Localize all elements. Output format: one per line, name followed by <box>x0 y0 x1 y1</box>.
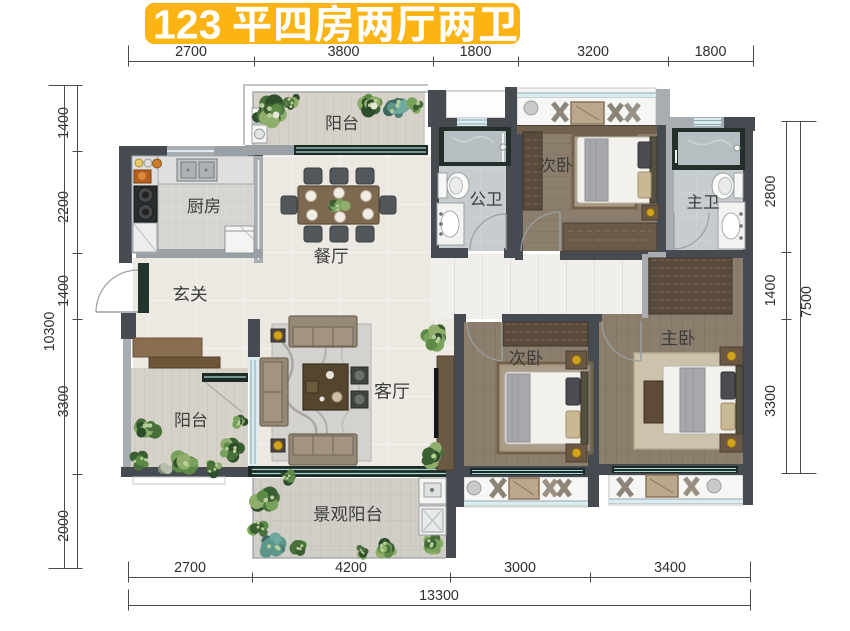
svg-text:1400: 1400 <box>763 275 779 307</box>
svg-text:3800: 3800 <box>328 44 360 60</box>
svg-text:13300: 13300 <box>419 588 459 604</box>
svg-text:2800: 2800 <box>763 176 779 208</box>
svg-text:123: 123 <box>153 2 221 48</box>
svg-text:4200: 4200 <box>335 560 367 576</box>
svg-text:3000: 3000 <box>504 560 536 576</box>
svg-text:10300: 10300 <box>42 312 58 352</box>
svg-text:3400: 3400 <box>654 560 686 576</box>
svg-text:2700: 2700 <box>174 560 206 576</box>
svg-text:7500: 7500 <box>799 286 815 318</box>
svg-text:1800: 1800 <box>460 44 492 60</box>
svg-text:1800: 1800 <box>695 44 727 60</box>
svg-text:3300: 3300 <box>763 385 779 417</box>
svg-text:3200: 3200 <box>577 44 609 60</box>
